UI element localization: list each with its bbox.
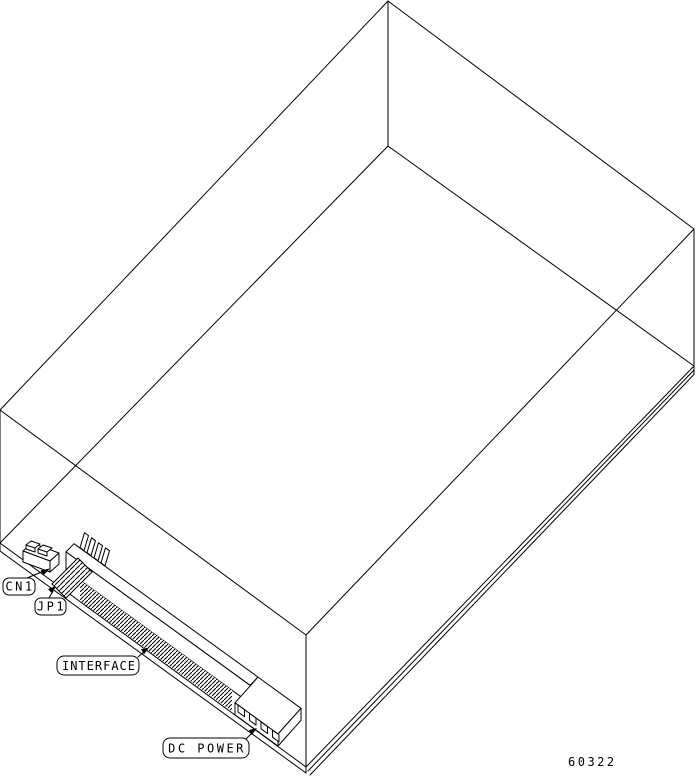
drive-diagram: CN1 JP1 INTERFACE DC POWER 60322 <box>0 0 696 778</box>
figure-number: 60322 <box>568 755 617 769</box>
interface-label: INTERFACE <box>62 659 136 673</box>
jp1-label: JP1 <box>37 600 66 614</box>
cn1-label: CN1 <box>5 580 34 594</box>
figure-canvas: CN1 JP1 INTERFACE DC POWER 60322 <box>0 0 696 778</box>
dc-power-label: DC POWER <box>168 742 246 756</box>
